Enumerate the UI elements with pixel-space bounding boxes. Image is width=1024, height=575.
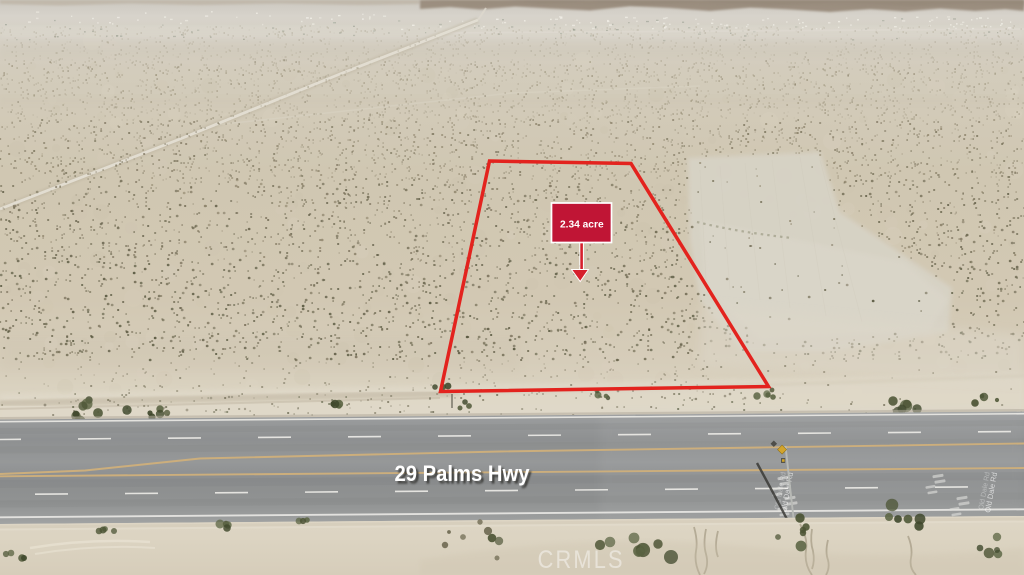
svg-text:CRMLS: CRMLS [538, 546, 625, 574]
svg-text:2.34 acre: 2.34 acre [560, 219, 604, 230]
svg-text:29 Palms Hwy: 29 Palms Hwy [395, 462, 530, 486]
